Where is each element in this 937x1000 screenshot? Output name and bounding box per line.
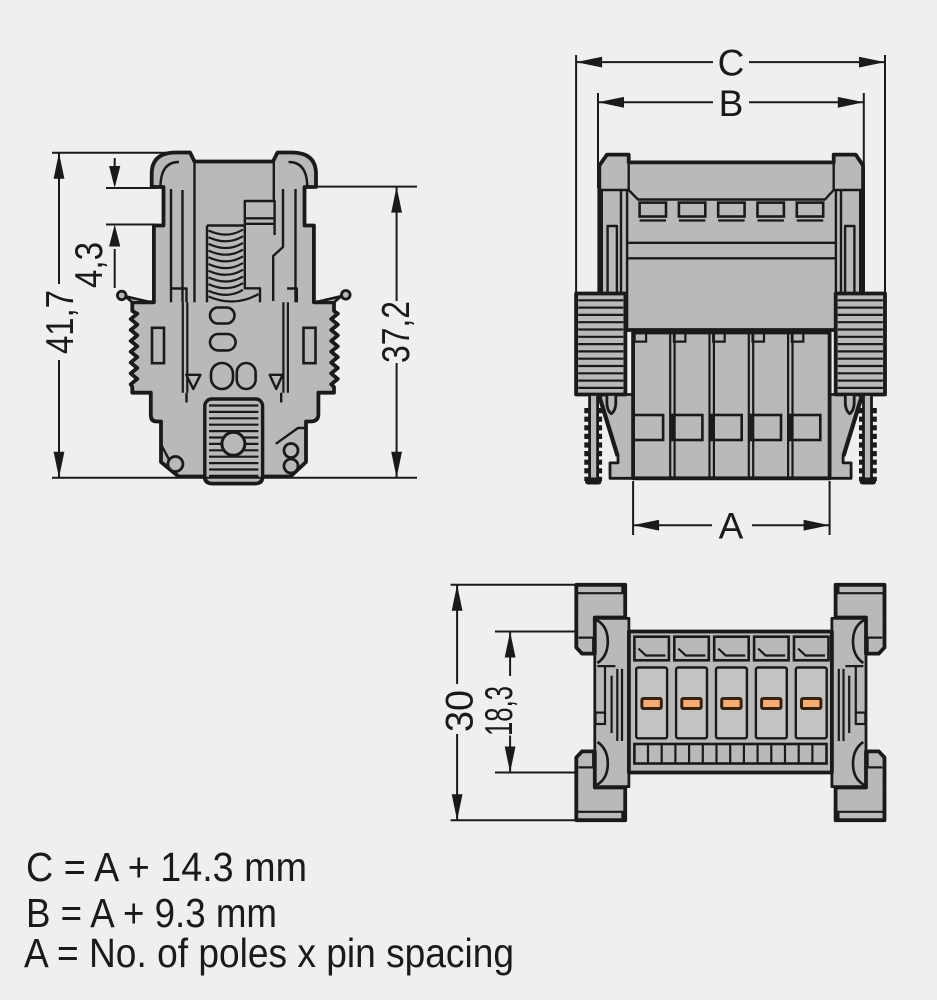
svg-text:37,2: 37,2 bbox=[375, 301, 418, 363]
svg-text:B: B bbox=[719, 83, 744, 124]
svg-text:41,7: 41,7 bbox=[39, 290, 82, 354]
svg-text:A: A bbox=[719, 506, 744, 547]
svg-text:A = No. of poles x pin spacing: A = No. of poles x pin spacing bbox=[24, 930, 514, 976]
svg-text:C = A + 14.3 mm: C = A + 14.3 mm bbox=[26, 844, 307, 890]
svg-text:C: C bbox=[718, 43, 745, 84]
svg-text:30: 30 bbox=[439, 690, 482, 732]
svg-text:4,3: 4,3 bbox=[68, 242, 111, 288]
svg-text:18,3: 18,3 bbox=[478, 686, 521, 736]
